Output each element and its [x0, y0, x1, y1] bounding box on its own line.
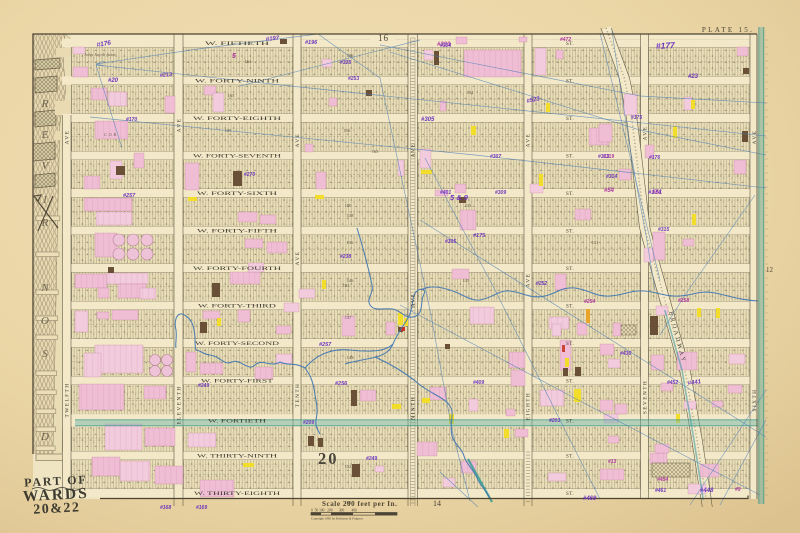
svg-text:131: 131: [592, 240, 599, 245]
svg-text:#401: #401: [440, 190, 451, 196]
svg-text:#452: #452: [667, 380, 678, 386]
svg-text:#175: #175: [473, 233, 486, 239]
svg-text:#174: #174: [648, 190, 662, 196]
svg-text:156: 156: [344, 128, 351, 133]
svg-text:165: 165: [372, 149, 379, 154]
svg-text:W. FORTIETH: W. FORTIETH: [208, 420, 267, 425]
svg-text:#313: #313: [598, 154, 609, 160]
svg-text:E: E: [41, 129, 49, 141]
svg-text:S: S: [42, 348, 48, 360]
svg-text:#314: #314: [606, 174, 617, 180]
svg-text:#436: #436: [620, 351, 631, 357]
svg-text:5: 5: [232, 53, 236, 60]
svg-text:0 50 100 200 300: 0 50 100 200 300 400: [311, 509, 357, 513]
svg-text:#258: #258: [678, 298, 689, 304]
svg-text:Scale 200 feet per In.: Scale 200 feet per In.: [322, 500, 397, 508]
svg-text:#20: #20: [108, 78, 119, 84]
svg-text:#257: #257: [319, 342, 332, 348]
svg-text:#169: #169: [196, 505, 207, 511]
svg-text:ST.: ST.: [566, 192, 574, 197]
svg-text:ST.: ST.: [566, 342, 574, 347]
svg-text:W. FIFTIETH: W. FIFTIETH: [205, 42, 270, 47]
svg-text:ELEVENTH: ELEVENTH: [177, 385, 183, 424]
svg-text:W. FORTY-SIXTH: W. FORTY-SIXTH: [197, 192, 278, 197]
svg-text:AVE: AVE: [65, 130, 71, 145]
svg-text:#209: #209: [303, 420, 314, 426]
svg-text:5 & 9: 5 & 9: [450, 193, 469, 202]
svg-text:192: 192: [343, 283, 350, 288]
svg-text:AVE: AVE: [295, 251, 301, 266]
svg-text:AVE: AVE: [295, 133, 301, 148]
svg-text:ST.: ST.: [566, 267, 574, 272]
svg-text:EIGHTH: EIGHTH: [526, 392, 532, 420]
svg-text:John Jacob Astor: John Jacob Astor: [84, 52, 116, 57]
svg-text:#175: #175: [631, 115, 642, 121]
svg-text:AVE: AVE: [643, 126, 649, 141]
svg-text:#23: #23: [688, 74, 699, 80]
svg-text:C. O. B.: C. O. B.: [104, 132, 117, 137]
svg-text:R: R: [41, 98, 49, 110]
svg-text:#469: #469: [583, 496, 597, 502]
svg-text:W. FORTY-FOURTH: W. FORTY-FOURTH: [193, 267, 282, 272]
svg-text:TWELFTH: TWELFTH: [65, 383, 71, 418]
svg-text:12: 12: [766, 266, 774, 274]
svg-text:ST.: ST.: [566, 305, 574, 310]
svg-text:#238: #238: [340, 254, 351, 260]
svg-text:#305: #305: [421, 117, 435, 123]
svg-text:SIXTH: SIXTH: [752, 389, 758, 412]
svg-text:#168: #168: [160, 505, 171, 511]
svg-text:#170: #170: [126, 117, 137, 123]
svg-text:AVE: AVE: [526, 273, 532, 288]
svg-text:ST.: ST.: [566, 230, 574, 235]
svg-text:16: 16: [378, 33, 389, 43]
svg-text:N: N: [40, 282, 49, 294]
svg-text:186: 186: [347, 53, 354, 58]
svg-text:#254: #254: [584, 299, 595, 305]
svg-text:#249: #249: [366, 456, 377, 462]
svg-text:AVE: AVE: [411, 293, 417, 308]
svg-text:ST.: ST.: [566, 455, 574, 460]
svg-text:AVE: AVE: [177, 118, 183, 133]
svg-text:#203: #203: [549, 418, 560, 424]
svg-text:#304: #304: [440, 43, 451, 49]
svg-text:20: 20: [318, 449, 339, 468]
svg-text:TENTH: TENTH: [295, 383, 301, 408]
svg-text:137: 137: [345, 315, 352, 320]
svg-text:#257: #257: [123, 193, 136, 199]
svg-text:#409: #409: [473, 380, 484, 386]
svg-text:165: 165: [228, 93, 235, 98]
svg-text:ST.: ST.: [566, 420, 574, 425]
svg-text:NINTH: NINTH: [411, 396, 417, 420]
svg-text:#249: #249: [198, 383, 209, 389]
svg-text:164: 164: [245, 59, 252, 64]
svg-text:Copyright 1885 by Robinson & P: Copyright 1885 by Robinson & Pidgeon: [311, 517, 363, 521]
svg-text:14: 14: [433, 499, 441, 508]
svg-text:W. THIRTY-EIGHTH: W. THIRTY-EIGHTH: [194, 492, 281, 497]
svg-text:#305: #305: [445, 239, 456, 245]
svg-text:#270: #270: [244, 172, 255, 178]
svg-text:#315: #315: [658, 227, 669, 233]
svg-text:R: R: [41, 217, 49, 229]
svg-text:ST.: ST.: [566, 492, 574, 497]
svg-text:W. FORTY-SEVENTH: W. FORTY-SEVENTH: [193, 155, 282, 160]
svg-text:133: 133: [465, 203, 472, 208]
svg-text:135: 135: [463, 278, 470, 283]
svg-text:#54: #54: [604, 188, 615, 194]
svg-text:W. FORTY-FIFTH: W. FORTY-FIFTH: [197, 230, 278, 235]
svg-text:152: 152: [345, 464, 352, 469]
svg-text:138: 138: [347, 213, 354, 218]
svg-text:O: O: [41, 315, 49, 327]
svg-text:136: 136: [347, 240, 354, 245]
svg-text:PLATE 15.: PLATE 15.: [702, 26, 754, 34]
svg-text:#196: #196: [305, 40, 318, 46]
svg-text:#252: #252: [536, 281, 547, 287]
svg-text:20&22: 20&22: [33, 500, 81, 517]
svg-text:SEVENTH: SEVENTH: [643, 380, 649, 414]
svg-text:AVE: AVE: [411, 143, 417, 158]
svg-text:#9: #9: [735, 487, 741, 493]
svg-text:W. FORTY-THIRD: W. FORTY-THIRD: [198, 305, 277, 310]
svg-text:#454: #454: [657, 477, 668, 483]
svg-text:#472: #472: [560, 37, 571, 43]
svg-text:#256: #256: [335, 381, 348, 387]
svg-text:#461: #461: [655, 488, 666, 494]
svg-text:W. FORTY-FIRST: W. FORTY-FIRST: [201, 380, 273, 385]
svg-text:#325: #325: [340, 60, 351, 66]
svg-text:W. FORTY-SECOND: W. FORTY-SECOND: [195, 342, 280, 347]
svg-text:W. FORTY-NINTH: W. FORTY-NINTH: [195, 80, 280, 85]
svg-text:W. THIRTY-NINTH: W. THIRTY-NINTH: [197, 455, 278, 460]
svg-text:W. FORTY-EIGHTH: W. FORTY-EIGHTH: [193, 117, 282, 122]
svg-text:ST.: ST.: [566, 380, 574, 385]
svg-text:D: D: [40, 431, 49, 443]
svg-text:ST.: ST.: [566, 155, 574, 160]
svg-text:#213: #213: [160, 72, 173, 79]
svg-text:134: 134: [467, 90, 474, 95]
svg-text:#253: #253: [348, 76, 359, 82]
svg-text:AVE: AVE: [752, 130, 758, 145]
svg-text:#309: #309: [495, 190, 506, 196]
svg-text:125: 125: [225, 128, 232, 133]
svg-text:#176: #176: [649, 155, 660, 161]
svg-text:149: 149: [347, 355, 354, 360]
svg-text:#177: #177: [656, 40, 677, 51]
svg-text:ST.: ST.: [566, 117, 574, 122]
svg-text:AVE: AVE: [526, 133, 532, 148]
svg-text:#13: #13: [608, 459, 617, 465]
svg-text:150: 150: [345, 203, 352, 208]
svg-text:#307: #307: [490, 154, 501, 160]
svg-text:#448: #448: [700, 488, 714, 494]
svg-text:ST.: ST.: [566, 80, 574, 85]
